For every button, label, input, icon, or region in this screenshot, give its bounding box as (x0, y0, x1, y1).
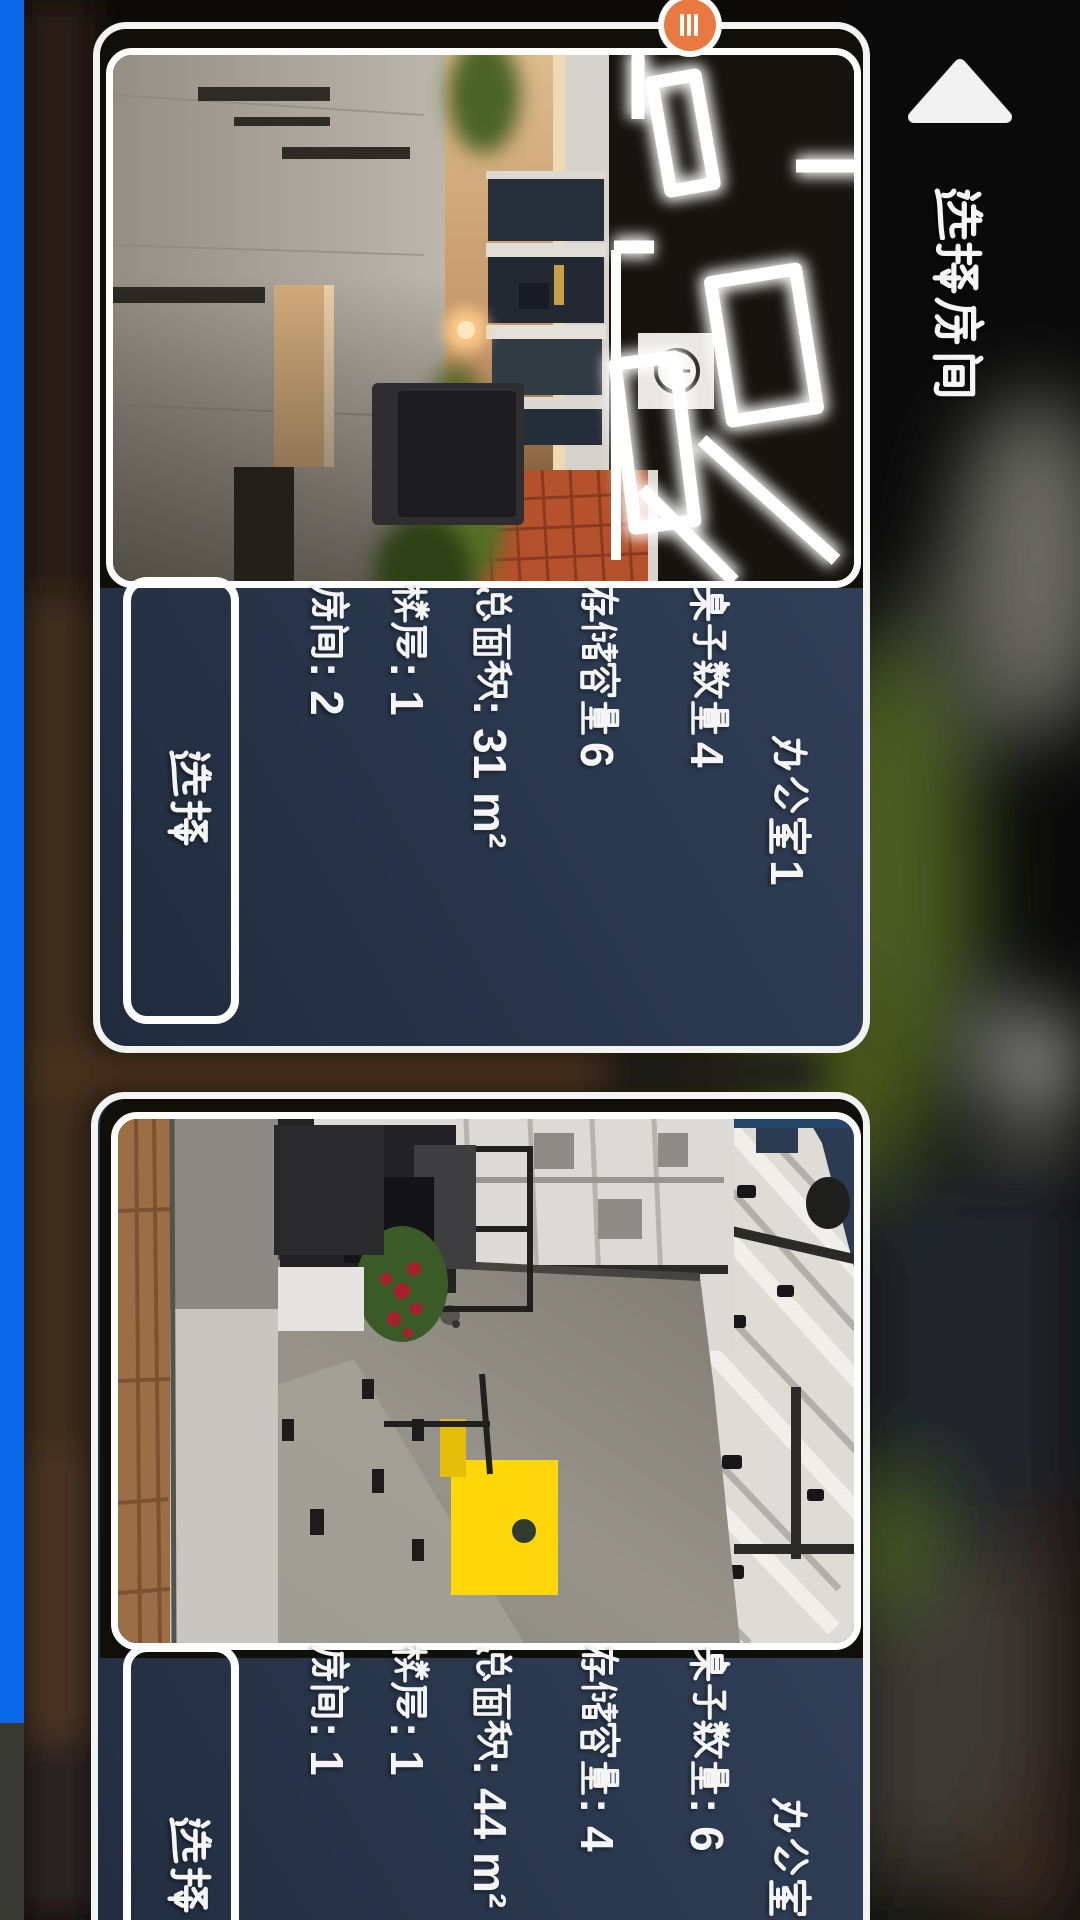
svg-text:: 44 m²: : 44 m² (464, 1760, 516, 1908)
svg-text:: 1: : 1 (381, 662, 433, 716)
svg-text:1: 1 (761, 860, 813, 886)
svg-text:4: 4 (681, 742, 733, 768)
svg-text:: 31 m²: : 31 m² (464, 700, 516, 848)
svg-text:: 1: : 1 (381, 1722, 433, 1776)
svg-text:: 4: : 4 (571, 1798, 623, 1852)
svg-text:: 2: : 2 (301, 662, 353, 716)
svg-text:: 6: : 6 (681, 1798, 733, 1852)
svg-text:6: 6 (571, 742, 623, 768)
svg-text:: 1: : 1 (301, 1722, 353, 1776)
